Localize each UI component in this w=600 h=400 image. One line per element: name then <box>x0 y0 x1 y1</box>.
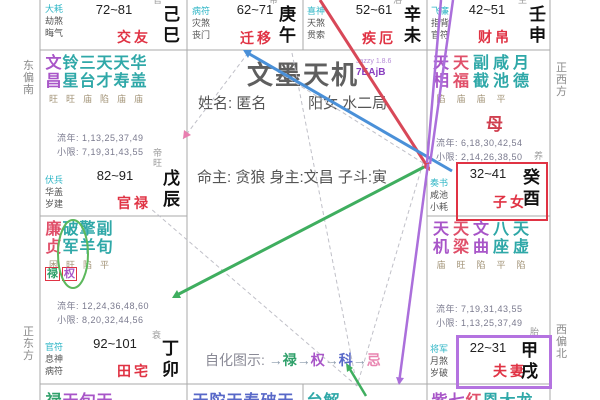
life-stage: 养 <box>533 151 544 161</box>
life-stage: 生 <box>517 0 528 5</box>
stem-branch: 丁卯 <box>161 338 180 380</box>
palace-stars: 紫七红恩大龙 <box>431 387 533 400</box>
legend-ke: 科 <box>339 352 353 368</box>
stem-branch: 己巳 <box>162 4 181 46</box>
palace-name: 迁移 <box>240 28 274 48</box>
legend-ji: 忌 <box>367 352 381 368</box>
pink-arrowhead <box>183 130 191 139</box>
life-stage: 浴 <box>392 0 403 5</box>
version-code: 7EAjB <box>356 67 385 78</box>
legend-arrow-icon: → <box>325 352 339 368</box>
red-arrowhead <box>422 162 430 171</box>
palace-name: 官禄 <box>117 193 151 213</box>
xiaoxian-years: 小限: 1,13,25,37,49 <box>436 316 523 329</box>
palace-gods: 奏书咸池小耗 <box>430 177 448 213</box>
palace-stars: 天机庙天梁旺文曲陷八座平天虚陷 <box>431 221 531 271</box>
stem-branch: 辛未 <box>403 4 422 46</box>
ziwei-chart: 东偏南 正东方 正西方 西偏北 大耗劫煞晦气 72~81 交友 官 己巳 病符灾… <box>0 0 600 400</box>
stem-branch: 壬申 <box>528 4 547 46</box>
stem-branch: 戊辰 <box>162 168 181 210</box>
palace-stars: 台解 <box>306 387 340 400</box>
transformation-legend: 自化图示: →禄→权→科→忌 <box>205 350 381 370</box>
compass-west-north: 西偏北 <box>555 324 568 360</box>
palace-name: 交友 <box>117 27 151 47</box>
palace-name: 田宅 <box>117 361 151 381</box>
liunian-years: 流年: 1,13,25,37,49 <box>57 131 144 144</box>
palace-gods: 大耗劫煞晦气 <box>45 3 63 39</box>
palace-stars: 廉贞困破军旺擎羊陷副旬平 <box>45 221 113 271</box>
compass-east-south: 东偏南 <box>22 60 35 96</box>
legend-arrow-icon: → <box>353 352 367 368</box>
palace-gods: 官符息神病符 <box>45 341 63 377</box>
compass-east: 正东方 <box>22 326 35 362</box>
children-highlight-box <box>456 162 548 221</box>
palace-gods: 病符灾煞丧门 <box>192 5 210 41</box>
green-arrowhead <box>172 290 181 298</box>
spouse-highlight-box <box>456 335 552 389</box>
legend-arrow-icon: → <box>269 352 283 368</box>
compass-west: 正西方 <box>555 62 568 98</box>
liunian-years: 流年: 7,19,31,43,55 <box>436 302 523 315</box>
purple-arrowhead <box>396 377 404 385</box>
legend-quan: 权 <box>311 352 325 368</box>
palace-gods: 伏兵华盖岁建 <box>45 174 63 210</box>
age-range: 92~101 <box>90 336 140 351</box>
version-name: Jazzy 1.8.6 <box>356 58 391 65</box>
palace-stars: 文昌旺铃星旺三台庙天才陷天寿庙华盖庙 <box>45 55 147 105</box>
life-stage: 帝旺 <box>152 148 163 168</box>
liunian-years: 流年: 6,18,30,42,54 <box>436 136 523 149</box>
palace-name: 疾厄 <box>362 28 396 48</box>
palace-name: 财帛 <box>478 27 512 47</box>
legend-arrow-icon: → <box>297 352 311 368</box>
palace-gods: 喜神天煞贯索 <box>307 5 325 41</box>
age-range: 72~81 <box>92 2 136 17</box>
person-name: 姓名: 匿名 <box>198 92 266 113</box>
xiaoxian-years: 小限: 7,19,31,43,55 <box>57 145 144 158</box>
liunian-years: 流年: 12,24,36,48,60 <box>57 299 149 312</box>
palace-stars: 天陀天寿破天 <box>192 387 294 400</box>
age-range: 82~91 <box>92 168 138 183</box>
age-range: 42~51 <box>465 2 509 17</box>
life-masters: 命主: 贪狼 身主:文昌 子斗:寅 <box>197 166 387 187</box>
palace-gods: 飞廉指背官符 <box>431 5 449 41</box>
mother-marker: 母 <box>486 110 503 135</box>
gender-bureau: 阳女 水二局 <box>308 92 387 113</box>
palace-stars: 天相陷天福庙副截庙咸池平月德 <box>431 55 531 105</box>
app-title: 文墨天机 <box>247 55 359 92</box>
legend-lu: 禄 <box>283 352 297 368</box>
transformation-badges: 禄权 <box>45 267 77 281</box>
green-small-flight-line <box>348 366 366 396</box>
xiaoxian-years: 小限: 8,20,32,44,56 <box>57 313 144 326</box>
age-range: 52~61 <box>352 2 396 17</box>
palace-stars: 禄天旬天 <box>45 387 113 400</box>
legend-label: 自化图示: <box>205 352 265 368</box>
palace-gods: 将军月煞岁破 <box>430 343 448 379</box>
stem-branch: 庚午 <box>278 4 297 46</box>
